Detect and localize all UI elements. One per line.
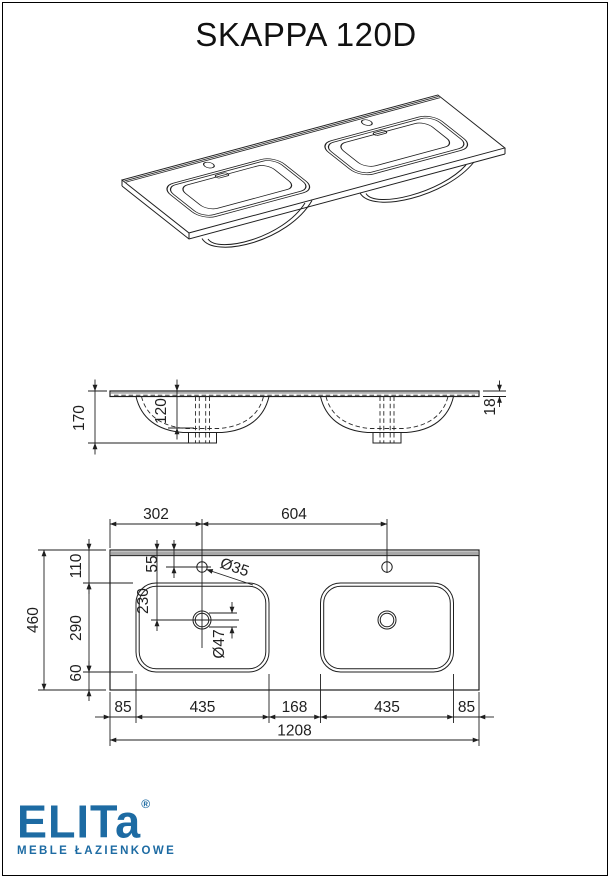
top-drain-right bbox=[378, 611, 396, 629]
isometric-view bbox=[122, 95, 505, 247]
dim-back-margin: 110 bbox=[68, 553, 85, 578]
dim-top-thickness: 18 bbox=[482, 398, 499, 415]
dim-right-margin: 85 bbox=[458, 699, 475, 716]
iso-basin-right bbox=[307, 104, 475, 177]
dim-total-depth: 460 bbox=[25, 607, 42, 633]
dim-overall-height: 170 bbox=[71, 405, 88, 431]
dim-hole-to-basin: 55 bbox=[144, 555, 161, 572]
dim-hole1-offset: 302 bbox=[143, 506, 169, 523]
front-bowl-right bbox=[321, 397, 454, 433]
iso-countertop-face bbox=[122, 95, 505, 233]
dim-left-margin: 85 bbox=[114, 699, 131, 716]
dim-faucet-hole-dia: Ø35 bbox=[218, 555, 251, 580]
dim-drain-hole-dia: Ø47 bbox=[211, 629, 228, 658]
dim-basin2-width: 435 bbox=[374, 699, 400, 716]
iso-faucet-hole-right bbox=[359, 119, 374, 127]
dim-front-margin: 60 bbox=[68, 664, 85, 682]
dim-drain-offset: 230 bbox=[135, 588, 152, 614]
front-drain-left bbox=[189, 397, 217, 444]
brand-wordmark: ELITa bbox=[17, 801, 141, 843]
top-view: 302 604 460 110 290 60 bbox=[25, 506, 494, 746]
front-view: 170 120 18 bbox=[71, 380, 506, 455]
brand-logo: ELITa® MEBLE ŁAZIENKOWE bbox=[17, 799, 217, 857]
top-basin-left bbox=[136, 583, 269, 672]
dim-basin-depth: 290 bbox=[68, 615, 85, 641]
dim-basin1-width: 435 bbox=[190, 699, 216, 716]
dim-center-gap: 168 bbox=[282, 699, 308, 716]
dim-bowl-depth: 120 bbox=[153, 398, 170, 424]
drawing-sheet: SKAPPA 120D bbox=[0, 0, 612, 881]
iso-faucet-hole-left bbox=[201, 161, 216, 169]
iso-basin-left bbox=[149, 147, 317, 220]
dim-hole-spacing: 604 bbox=[281, 506, 307, 523]
technical-drawing-svg: 170 120 18 bbox=[0, 0, 612, 881]
top-basin-right bbox=[321, 583, 454, 672]
top-view-dimensions: 302 604 460 110 290 60 bbox=[25, 506, 494, 746]
registered-trademark-symbol: ® bbox=[141, 797, 150, 811]
iso-bowl-underside-left bbox=[202, 201, 312, 248]
front-drain-right bbox=[373, 397, 401, 444]
dim-total-width: 1208 bbox=[277, 723, 311, 740]
